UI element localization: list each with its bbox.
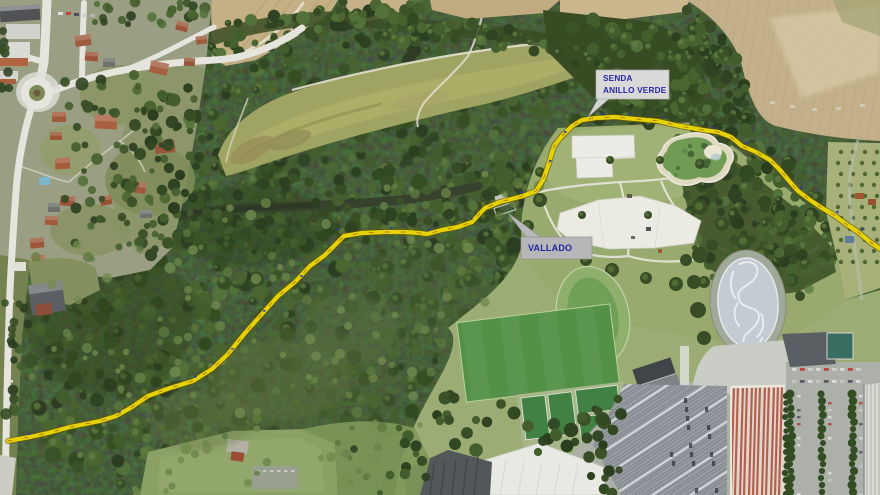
svg-text:ANILLO VERDE: ANILLO VERDE <box>603 86 667 95</box>
svg-text:VALLADO: VALLADO <box>528 243 572 253</box>
svg-text:SENDA: SENDA <box>603 74 633 83</box>
